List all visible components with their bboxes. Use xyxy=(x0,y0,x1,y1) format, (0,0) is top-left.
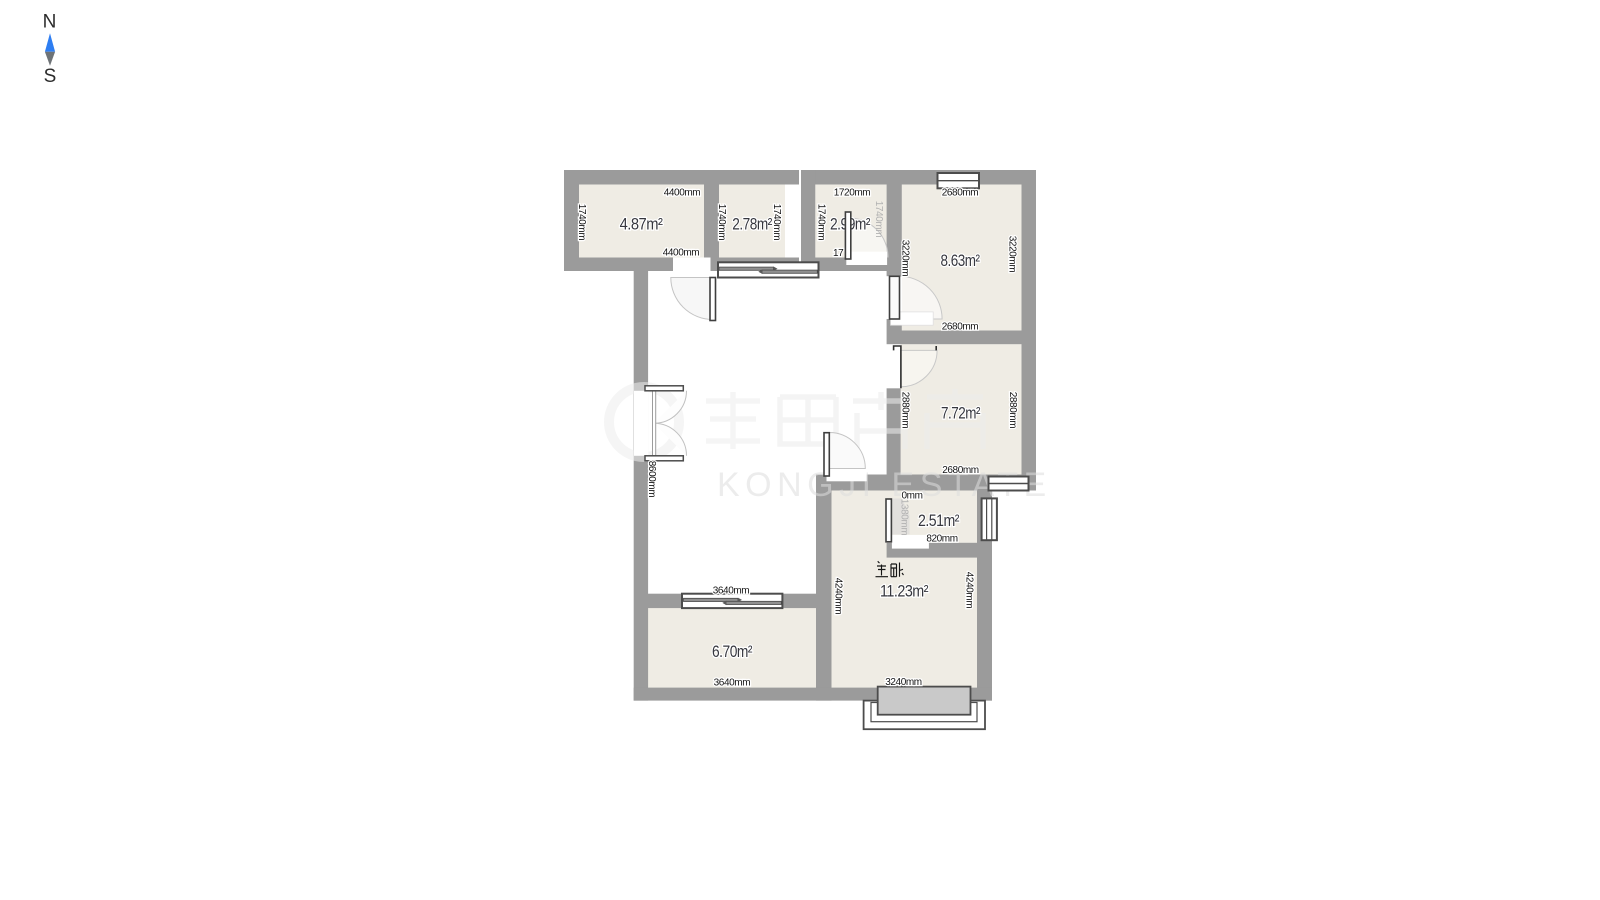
svg-text:3220mm: 3220mm xyxy=(899,240,910,277)
svg-text:1720mm: 1720mm xyxy=(834,188,871,199)
svg-text:2680mm: 2680mm xyxy=(942,465,979,476)
svg-text:3240mm: 3240mm xyxy=(885,677,922,688)
svg-text:4400mm: 4400mm xyxy=(664,188,701,199)
svg-text:1740mm: 1740mm xyxy=(815,204,826,241)
svg-text:2680mm: 2680mm xyxy=(942,321,979,332)
svg-text:8600mm: 8600mm xyxy=(646,461,657,498)
svg-text:6.70m²: 6.70m² xyxy=(712,642,753,661)
svg-text:S: S xyxy=(44,66,57,87)
svg-text:3220mm: 3220mm xyxy=(1006,236,1017,273)
svg-text:2680mm: 2680mm xyxy=(942,188,979,199)
svg-text:1740mm: 1740mm xyxy=(873,201,884,238)
svg-text:2.78m²: 2.78m² xyxy=(732,215,772,234)
svg-text:4240mm: 4240mm xyxy=(963,572,974,609)
svg-text:1740mm: 1740mm xyxy=(771,204,782,241)
svg-text:1740mm: 1740mm xyxy=(716,204,727,241)
svg-text:8.63m²: 8.63m² xyxy=(941,251,981,270)
svg-text:17: 17 xyxy=(833,248,844,259)
svg-text:3640mm: 3640mm xyxy=(713,586,750,597)
svg-text:N: N xyxy=(43,12,57,33)
svg-text:4240mm: 4240mm xyxy=(832,578,843,615)
svg-text:820mm: 820mm xyxy=(926,534,957,545)
svg-text:4400mm: 4400mm xyxy=(663,247,700,258)
svg-text:11.23m²: 11.23m² xyxy=(880,582,929,601)
svg-text:1380mm: 1380mm xyxy=(898,499,909,536)
svg-text:2880mm: 2880mm xyxy=(1007,392,1018,429)
svg-text:4.87m²: 4.87m² xyxy=(620,215,664,234)
svg-text:7.72m²: 7.72m² xyxy=(941,404,981,423)
svg-text:3640mm: 3640mm xyxy=(714,678,751,689)
svg-text:2.51m²: 2.51m² xyxy=(918,511,960,530)
svg-text:2880mm: 2880mm xyxy=(899,392,910,429)
svg-text:1740mm: 1740mm xyxy=(576,204,587,241)
